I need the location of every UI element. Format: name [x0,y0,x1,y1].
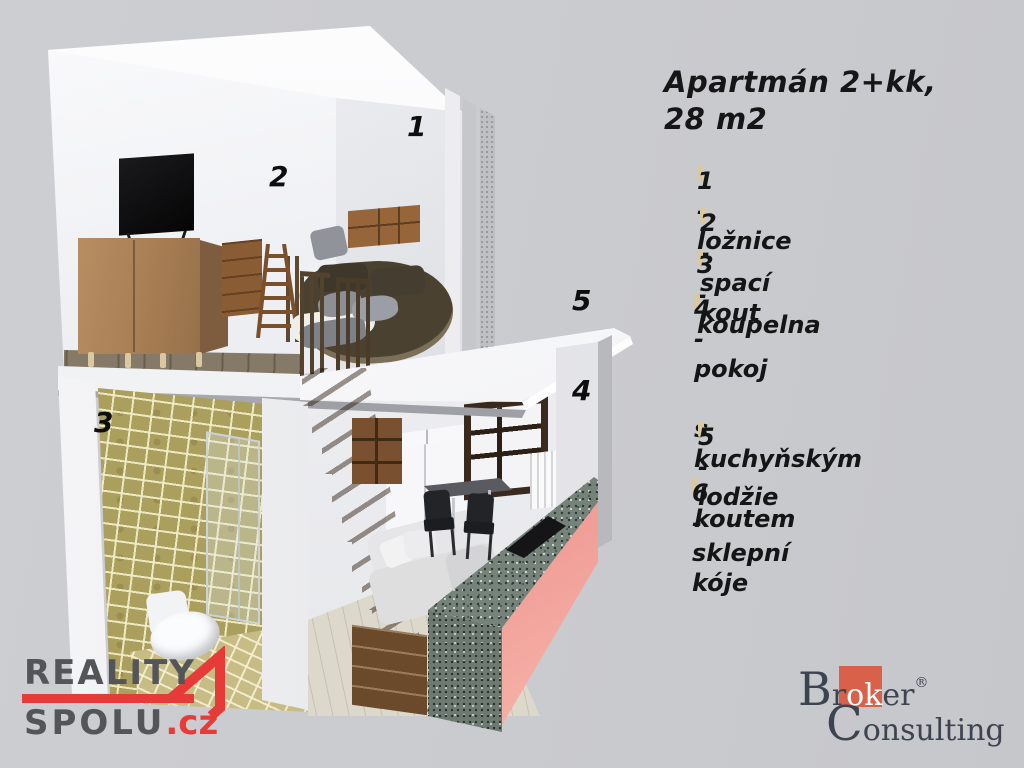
broker-consulting-logo: Broker® Consulting [790,652,1024,756]
chair-leg [429,531,434,557]
chair-leg [451,529,456,555]
stair-storage-steps [352,625,427,716]
legend-item-2: 2 - spací kout [700,208,706,223]
room-label-2: 2 [269,160,288,193]
chair-leg [466,533,471,559]
reality-logo-word: SPOLU [24,703,165,743]
dresser-seam [133,240,135,352]
legend-item-3: 3 - koupelna [697,250,703,265]
stair-shelf [352,418,402,484]
room-label-5: 5 [572,284,591,317]
dresser-leg [88,352,94,367]
registered-mark: ® [915,675,929,691]
title-line-2: 28 m2 [664,101,937,138]
dining-chair [423,489,463,558]
broker-logo-line-2: Consulting [826,696,1005,752]
broker-seg: onsulting [863,713,1005,748]
reality-logo-line-2: SPOLU.cz [24,704,218,742]
shower-glass [206,431,260,625]
broker-initial-c: C [826,696,863,752]
room-label-3: 3 [94,406,113,439]
dresser [78,238,200,354]
legend-item-1: 1 - ložnice [697,166,703,181]
dining-chair [464,493,503,561]
reality-spolu-logo: REALITY SPOLU.cz [20,646,265,762]
bed-headboard [370,265,426,299]
title-line-1: Apartmán 2+kk, [664,64,937,101]
legend-item-5: 5 - lodžie [698,422,704,437]
wall-shelf [348,205,420,248]
reality-logo-line-1: REALITY [24,654,196,692]
legend-item-6: 6 - sklepní kóje [692,478,698,493]
dresser-leg [160,353,166,368]
room-label-1: 1 [407,110,426,143]
dresser-leg [196,352,202,367]
legend-item-4: 4 - pokoj s kuchyňským koutem [694,294,700,309]
radiator [530,450,556,509]
dresser-leg [125,353,131,368]
page-title: Apartmán 2+kk, 28 m2 [664,64,937,138]
tv [119,153,194,235]
reality-logo-tld: .cz [165,703,218,743]
chair-leg [488,534,493,560]
apartment-visualization: 1 2 3 4 5 Apartmán 2+kk, 28 m2 1 - ložni… [0,0,1024,768]
room-label-4: 4 [572,374,591,407]
